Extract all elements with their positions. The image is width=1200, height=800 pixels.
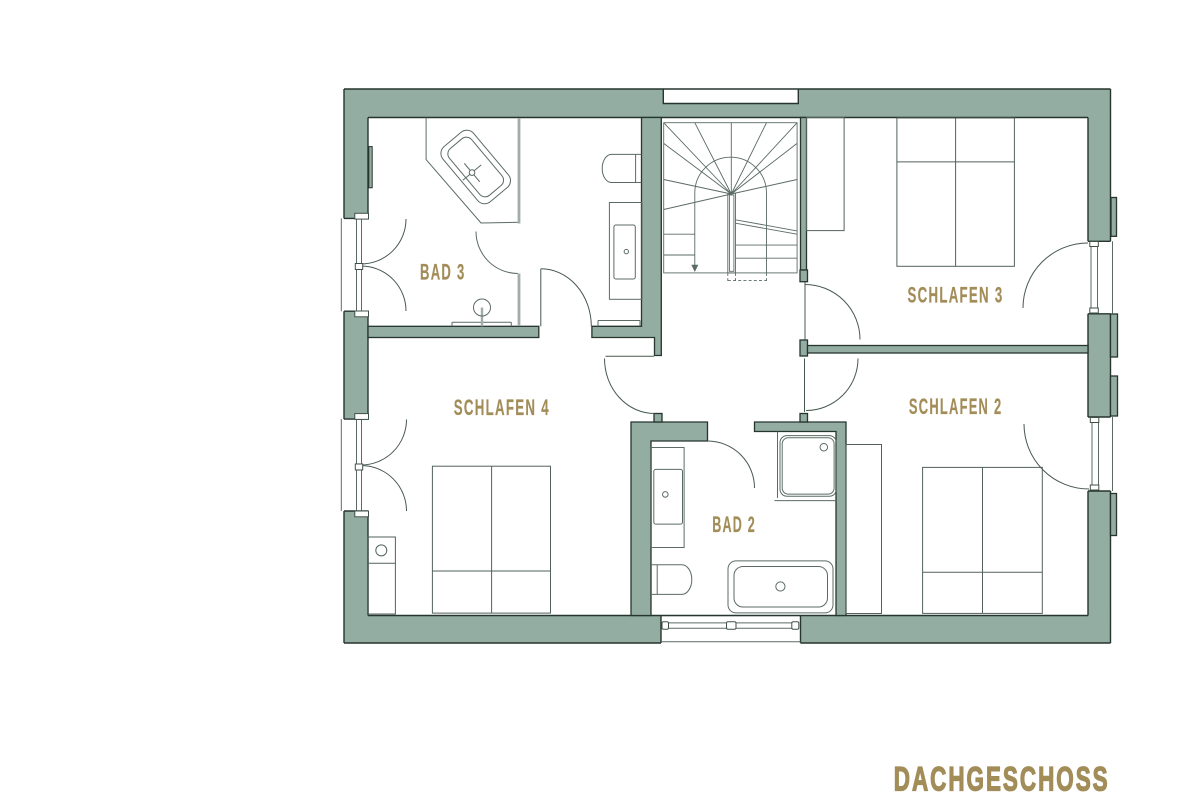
svg-text:SCHLAFEN 3: SCHLAFEN 3 bbox=[908, 283, 1004, 308]
svg-text:BAD 2: BAD 2 bbox=[712, 512, 756, 537]
svg-text:SCHLAFEN 4: SCHLAFEN 4 bbox=[454, 395, 550, 420]
svg-text:BAD 3: BAD 3 bbox=[420, 260, 466, 285]
svg-text:DACHGESCHOSS: DACHGESCHOSS bbox=[894, 760, 1110, 798]
svg-text:SCHLAFEN 2: SCHLAFEN 2 bbox=[909, 394, 1003, 419]
